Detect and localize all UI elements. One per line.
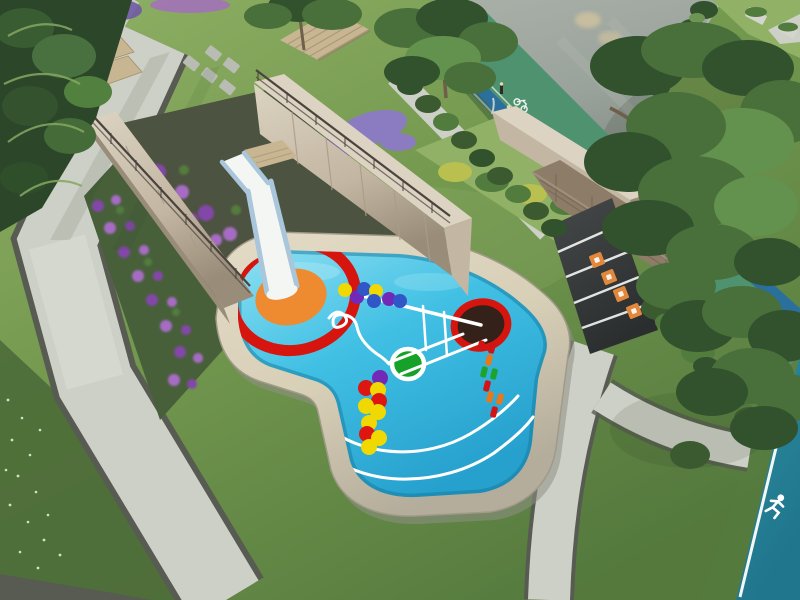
- rendered-scene: [0, 0, 800, 600]
- lamp-glow: [575, 12, 601, 28]
- planter-plants: [745, 7, 767, 17]
- planter-plants: [778, 23, 798, 32]
- path-highlight: [57, 242, 95, 382]
- lavender-patch: [380, 133, 416, 151]
- playground-aerial-render: [0, 0, 800, 600]
